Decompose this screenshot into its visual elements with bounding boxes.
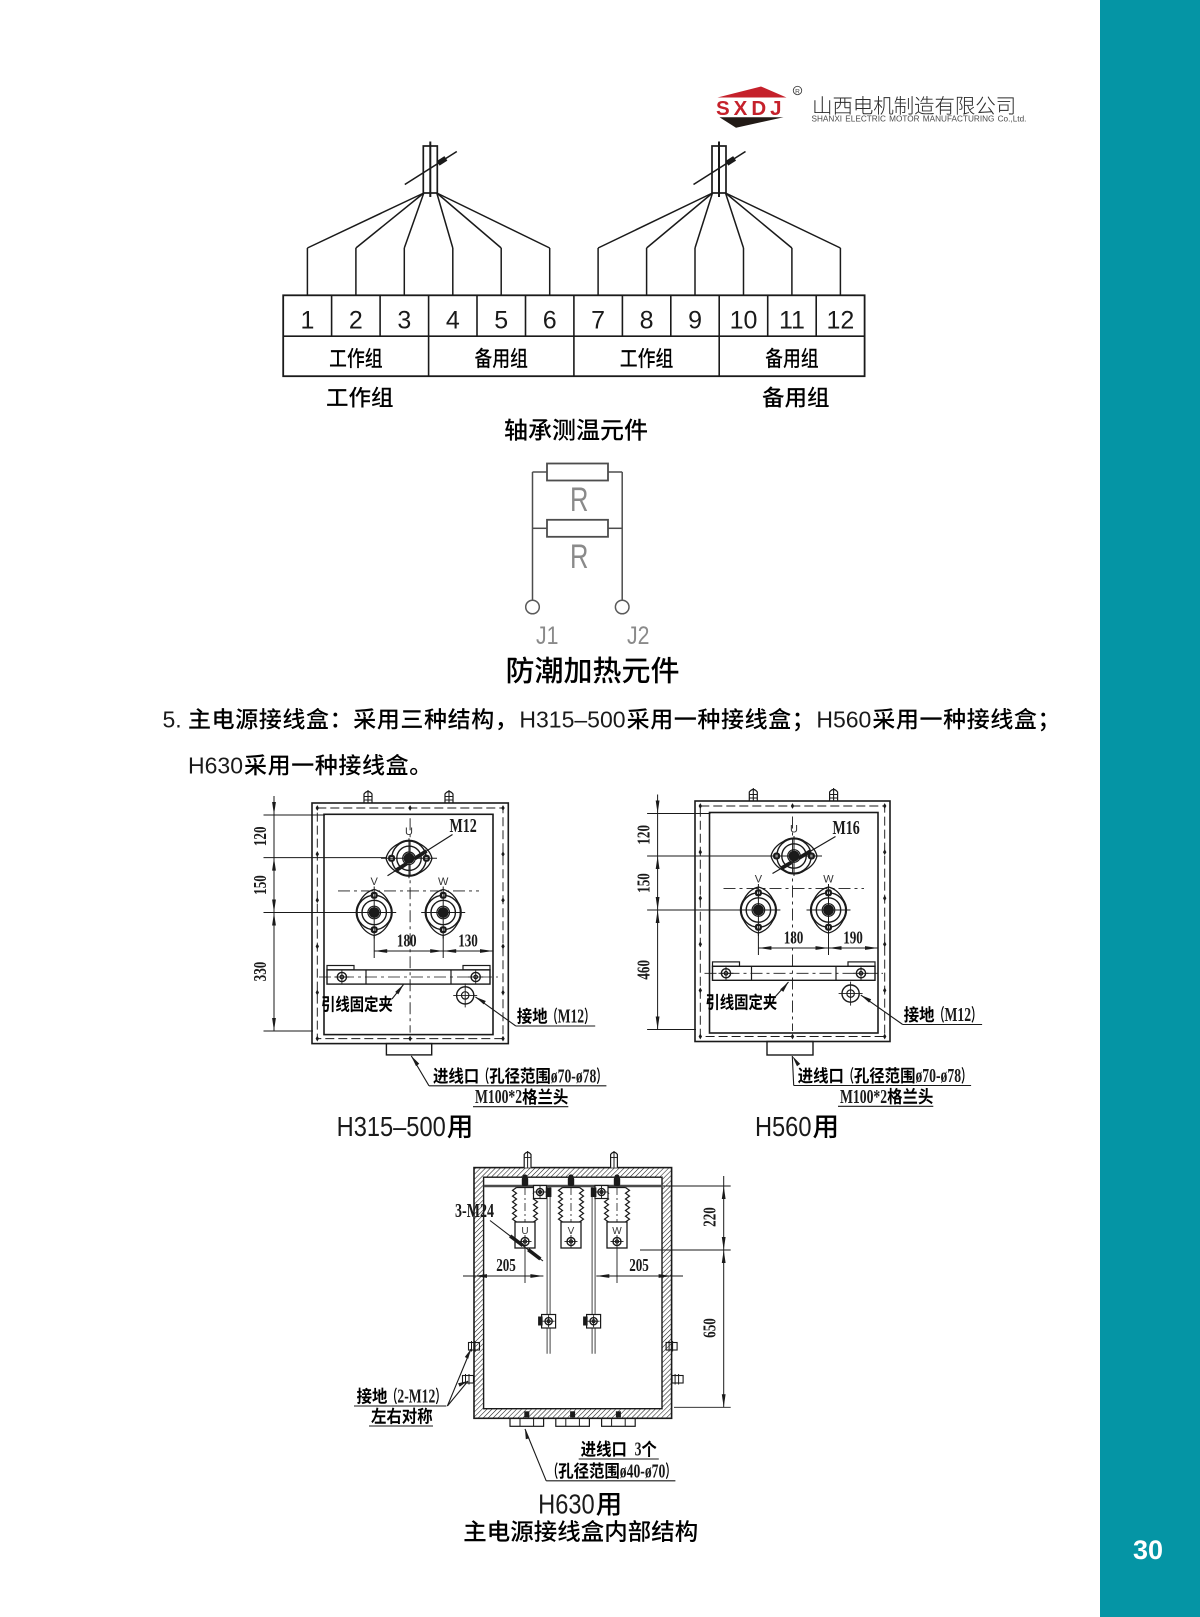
svg-text:1: 1 — [300, 306, 314, 334]
svg-text:120: 120 — [251, 826, 270, 846]
svg-text:2-M12: 2-M12 — [397, 1385, 435, 1407]
svg-text:330: 330 — [251, 961, 270, 981]
svg-text:SHANXI ELECTRIC MOTOR MANUFACT: SHANXI ELECTRIC MOTOR MANUFACTURING Co.,… — [812, 115, 1027, 124]
svg-text:11: 11 — [779, 306, 805, 334]
svg-text:ø70-ø78: ø70-ø78 — [915, 1064, 961, 1086]
svg-text:2: 2 — [349, 306, 363, 334]
svg-text:M16: M16 — [833, 817, 860, 839]
svg-text:M12: M12 — [450, 815, 477, 837]
svg-text:150: 150 — [635, 873, 654, 893]
svg-text:H630: H630 — [538, 1490, 594, 1520]
svg-text:V: V — [755, 874, 763, 886]
svg-text:3: 3 — [635, 1438, 642, 1460]
svg-text:6: 6 — [543, 306, 557, 334]
svg-text:R: R — [570, 539, 588, 576]
svg-text:3: 3 — [397, 306, 411, 334]
svg-text:30: 30 — [1133, 1535, 1163, 1565]
svg-text:R: R — [570, 482, 588, 519]
svg-text:H560: H560 — [755, 1112, 811, 1142]
svg-text:R: R — [795, 88, 800, 95]
svg-text:4: 4 — [446, 306, 460, 334]
svg-text:ø40-ø70: ø40-ø70 — [620, 1460, 666, 1482]
svg-text:7: 7 — [591, 306, 605, 334]
svg-text:J1: J1 — [536, 621, 558, 649]
svg-text:205: 205 — [629, 1256, 649, 1275]
svg-text:H560: H560 — [816, 707, 871, 733]
svg-text:205: 205 — [496, 1256, 516, 1275]
svg-text:H630: H630 — [188, 753, 243, 779]
svg-text:SXDJ: SXDJ — [716, 97, 786, 120]
svg-text:12: 12 — [826, 306, 854, 334]
svg-text:180: 180 — [397, 932, 417, 951]
svg-text:10: 10 — [730, 306, 758, 334]
svg-text:220: 220 — [701, 1207, 720, 1227]
svg-text:H315–500: H315–500 — [337, 1112, 446, 1142]
svg-text:8: 8 — [640, 306, 654, 334]
svg-text:U: U — [405, 826, 413, 838]
svg-text:ø70-ø78: ø70-ø78 — [551, 1065, 597, 1087]
svg-text:150: 150 — [251, 875, 270, 895]
svg-text:5.: 5. — [163, 707, 182, 733]
svg-text:180: 180 — [784, 929, 804, 948]
svg-text:460: 460 — [635, 960, 654, 980]
svg-text:130: 130 — [458, 932, 478, 951]
svg-text:H315–500: H315–500 — [519, 707, 625, 733]
svg-text:5: 5 — [494, 306, 508, 334]
svg-text:V: V — [371, 876, 379, 888]
svg-text:650: 650 — [701, 1318, 720, 1338]
svg-text:M100*2: M100*2 — [475, 1086, 522, 1108]
svg-text:M100*2: M100*2 — [840, 1085, 887, 1107]
svg-text:W: W — [823, 874, 834, 886]
svg-text:M12: M12 — [944, 1003, 971, 1025]
svg-text:M12: M12 — [558, 1005, 585, 1027]
svg-text:190: 190 — [843, 929, 863, 948]
svg-text:W: W — [438, 876, 449, 888]
svg-text:3-M24: 3-M24 — [455, 1200, 494, 1222]
svg-text:U: U — [790, 824, 798, 836]
svg-text:J2: J2 — [627, 621, 649, 649]
svg-text:120: 120 — [635, 825, 654, 845]
svg-text:9: 9 — [688, 306, 702, 334]
